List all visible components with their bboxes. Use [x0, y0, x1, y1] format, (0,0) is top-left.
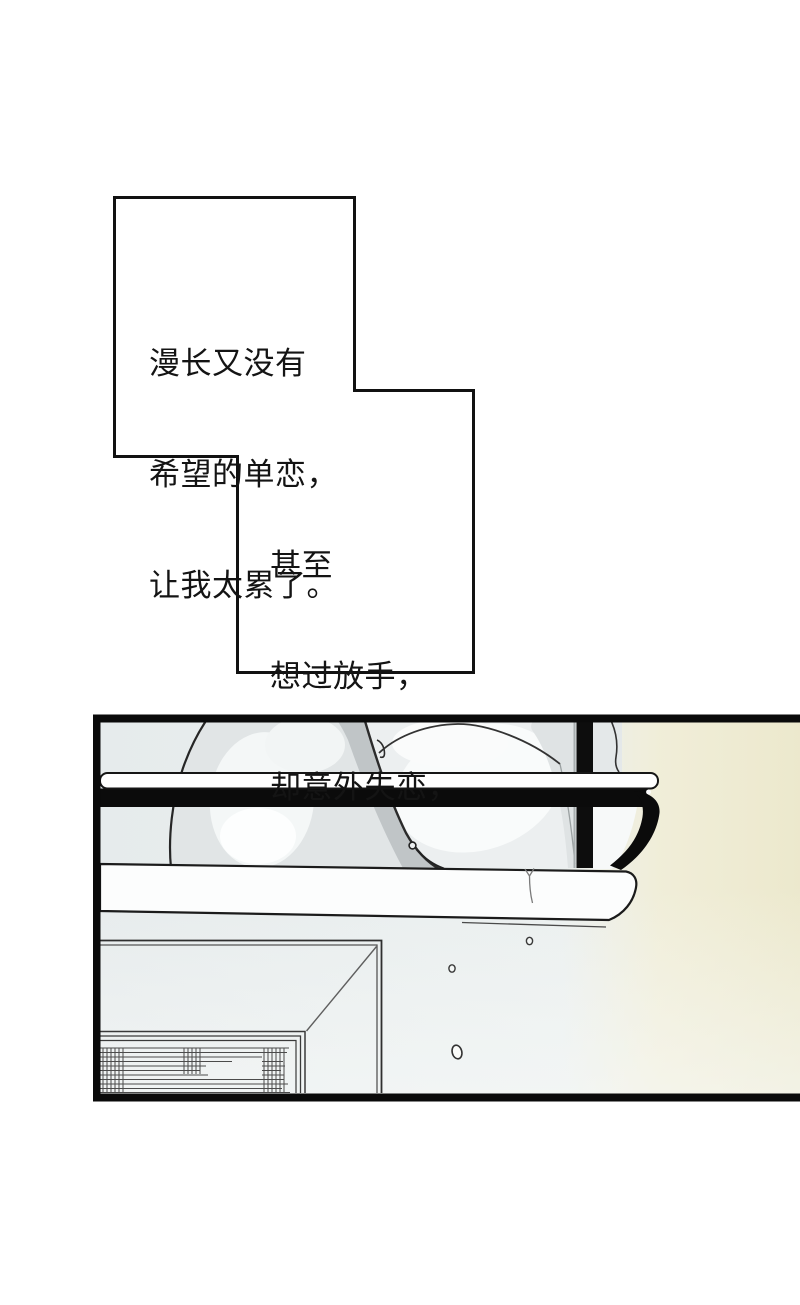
caption-line: 却意外失恋， [270, 769, 459, 806]
droplet-small-1 [526, 937, 532, 944]
droplet-small-2 [449, 965, 455, 972]
panel-border-left [93, 715, 101, 1102]
caption-box-2: 甚至 想过放手， 却意外失恋， [270, 473, 459, 843]
plate-rim-loop [409, 842, 416, 849]
caption-line: 漫长又没有 [149, 345, 338, 382]
caption-line: 想过放手， [270, 658, 459, 695]
panel-border-bottom [93, 1094, 800, 1102]
shelf-face [100, 864, 636, 920]
caption-line: 甚至 [270, 547, 459, 584]
rack-cap-glint [646, 790, 651, 795]
